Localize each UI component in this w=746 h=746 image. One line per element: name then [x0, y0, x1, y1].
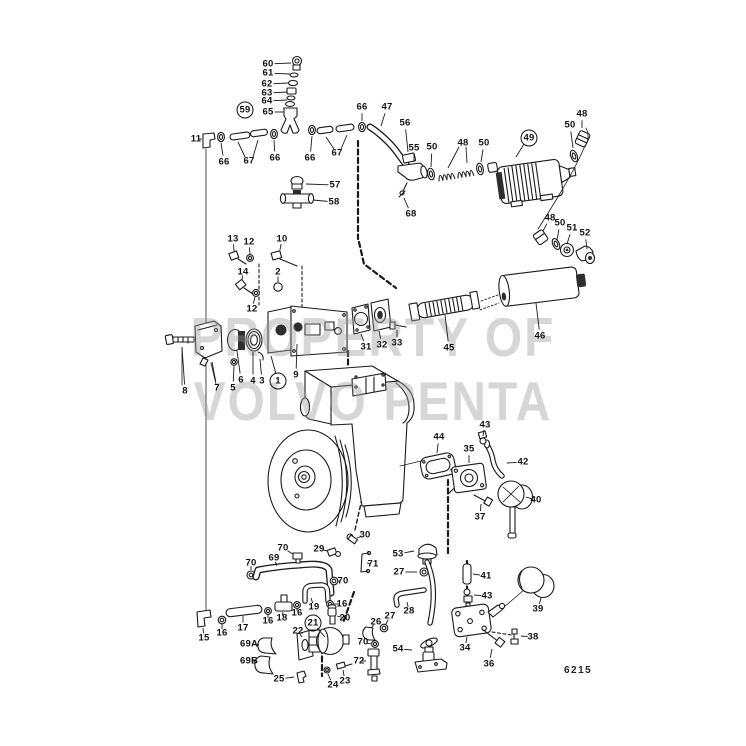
leader-line	[543, 224, 547, 231]
leader-line	[280, 244, 281, 250]
leader-line	[480, 504, 481, 511]
leader-line	[404, 198, 408, 208]
leader-line	[567, 234, 570, 244]
leader-line	[282, 612, 283, 615]
leader-line	[466, 147, 467, 163]
leader-line	[203, 628, 204, 634]
leader-line	[253, 297, 255, 304]
leader-line	[274, 140, 275, 152]
leader-line	[437, 443, 438, 453]
leader-line	[233, 366, 234, 382]
leader-line	[483, 430, 484, 436]
leader-line	[326, 137, 334, 149]
leader-line	[407, 602, 408, 607]
leader-line	[361, 334, 364, 341]
leader-line	[557, 229, 559, 240]
leader-line	[526, 497, 532, 499]
leader-line	[328, 674, 331, 680]
leader-line	[571, 131, 573, 148]
leader-line	[237, 351, 240, 374]
leader-line	[296, 344, 297, 369]
leader-line	[367, 643, 371, 644]
leader-line	[275, 562, 277, 566]
leader-line	[404, 551, 414, 553]
leader-line	[233, 244, 234, 251]
leader-line	[343, 670, 344, 676]
leader-line	[311, 136, 312, 152]
leader-line	[285, 677, 294, 678]
leader-line	[249, 247, 250, 254]
leader-layer	[0, 0, 746, 746]
leader-line	[539, 598, 541, 604]
leader-line	[238, 142, 245, 157]
leader-line	[273, 100, 287, 101]
leader-line	[274, 63, 291, 64]
leader-line	[536, 303, 539, 330]
leader-line	[490, 649, 492, 658]
leader-line	[288, 551, 294, 554]
parts-diagram-canvas: PROPERTY OF VOLVO PENTA 6061626364655911…	[0, 0, 746, 746]
leader-line	[379, 331, 381, 339]
leader-line	[357, 536, 361, 538]
leader-line	[386, 620, 388, 624]
leader-line	[271, 356, 276, 374]
leader-line	[212, 362, 216, 382]
leader-line	[367, 563, 370, 564]
leader-line	[516, 144, 524, 157]
leader-line	[273, 83, 289, 84]
leader-line	[507, 462, 517, 463]
leader-line	[242, 276, 243, 280]
leader-line	[253, 140, 258, 157]
leader-line	[313, 200, 328, 201]
leader-line	[311, 598, 313, 603]
leader-line	[586, 239, 587, 249]
leader-line	[221, 143, 223, 156]
leader-line	[371, 625, 374, 628]
leader-line	[381, 113, 385, 126]
leader-line	[273, 92, 287, 93]
leader-line	[406, 129, 408, 152]
leader-line	[274, 73, 290, 74]
leader-line	[254, 644, 260, 645]
leader-line	[260, 359, 261, 375]
leader-line	[431, 153, 432, 167]
leader-line	[473, 574, 480, 575]
leader-line	[323, 550, 328, 551]
leader-line	[466, 637, 467, 643]
leader-line	[317, 628, 325, 637]
leader-line	[404, 649, 412, 650]
leader-line	[306, 184, 329, 185]
leader-line	[445, 315, 448, 342]
leader-line	[448, 147, 459, 168]
leader-line	[182, 347, 185, 385]
leader-line	[337, 616, 341, 617]
leader-line	[521, 636, 528, 637]
leader-line	[474, 595, 481, 596]
figure-number: 6215	[564, 665, 592, 676]
leader-line	[341, 135, 347, 149]
leader-line	[481, 149, 483, 162]
leader-line	[300, 634, 302, 637]
